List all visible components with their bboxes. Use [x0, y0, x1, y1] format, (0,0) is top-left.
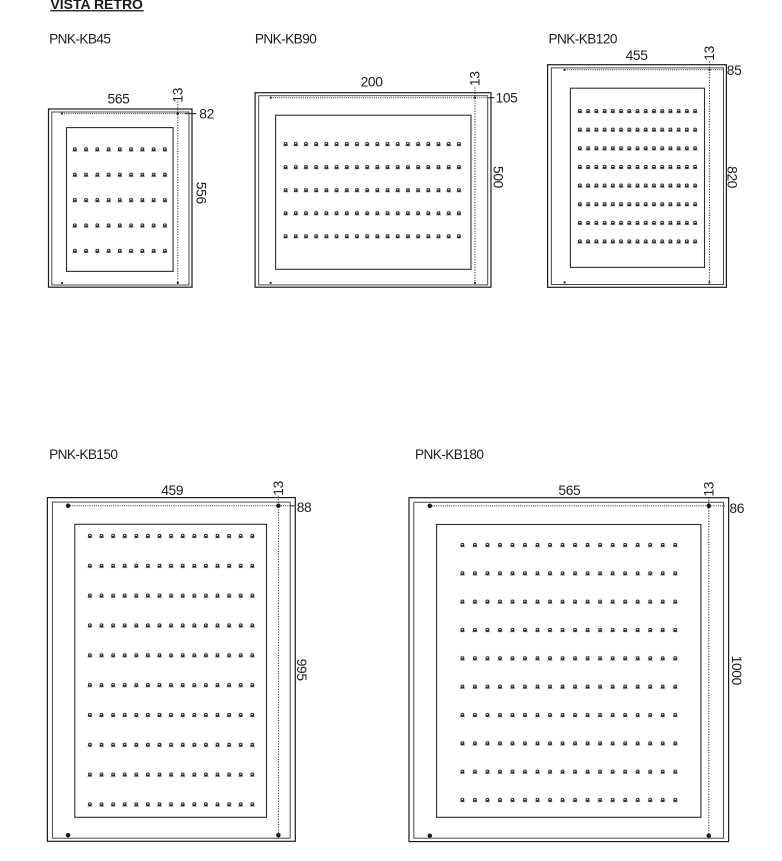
svg-text:PNK-KB120: PNK-KB120 — [549, 31, 618, 46]
svg-text:13: 13 — [468, 71, 483, 86]
svg-text:PNK-KB90: PNK-KB90 — [255, 31, 317, 46]
svg-text:565: 565 — [558, 483, 581, 498]
svg-text:1000: 1000 — [729, 656, 744, 686]
svg-text:13: 13 — [702, 45, 717, 60]
svg-text:88: 88 — [297, 500, 312, 515]
svg-text:PNK-KB45: PNK-KB45 — [49, 32, 110, 47]
svg-text:565: 565 — [108, 91, 131, 106]
svg-text:556: 556 — [194, 182, 209, 205]
svg-text:82: 82 — [199, 106, 214, 121]
svg-text:86: 86 — [729, 501, 744, 516]
svg-text:PNK-KB180: PNK-KB180 — [415, 447, 484, 462]
svg-text:13: 13 — [271, 480, 286, 495]
svg-text:820: 820 — [725, 166, 740, 189]
svg-text:200: 200 — [361, 75, 384, 90]
svg-text:500: 500 — [491, 166, 506, 189]
svg-text:PNK-KB150: PNK-KB150 — [49, 447, 118, 462]
svg-text:VISTA RETRO: VISTA RETRO — [50, 0, 143, 12]
svg-text:13: 13 — [701, 481, 716, 496]
svg-text:13: 13 — [171, 87, 186, 102]
svg-text:995: 995 — [294, 659, 309, 682]
svg-text:85: 85 — [727, 63, 742, 78]
svg-text:455: 455 — [626, 48, 649, 63]
svg-text:105: 105 — [496, 90, 519, 105]
svg-text:459: 459 — [161, 483, 184, 498]
